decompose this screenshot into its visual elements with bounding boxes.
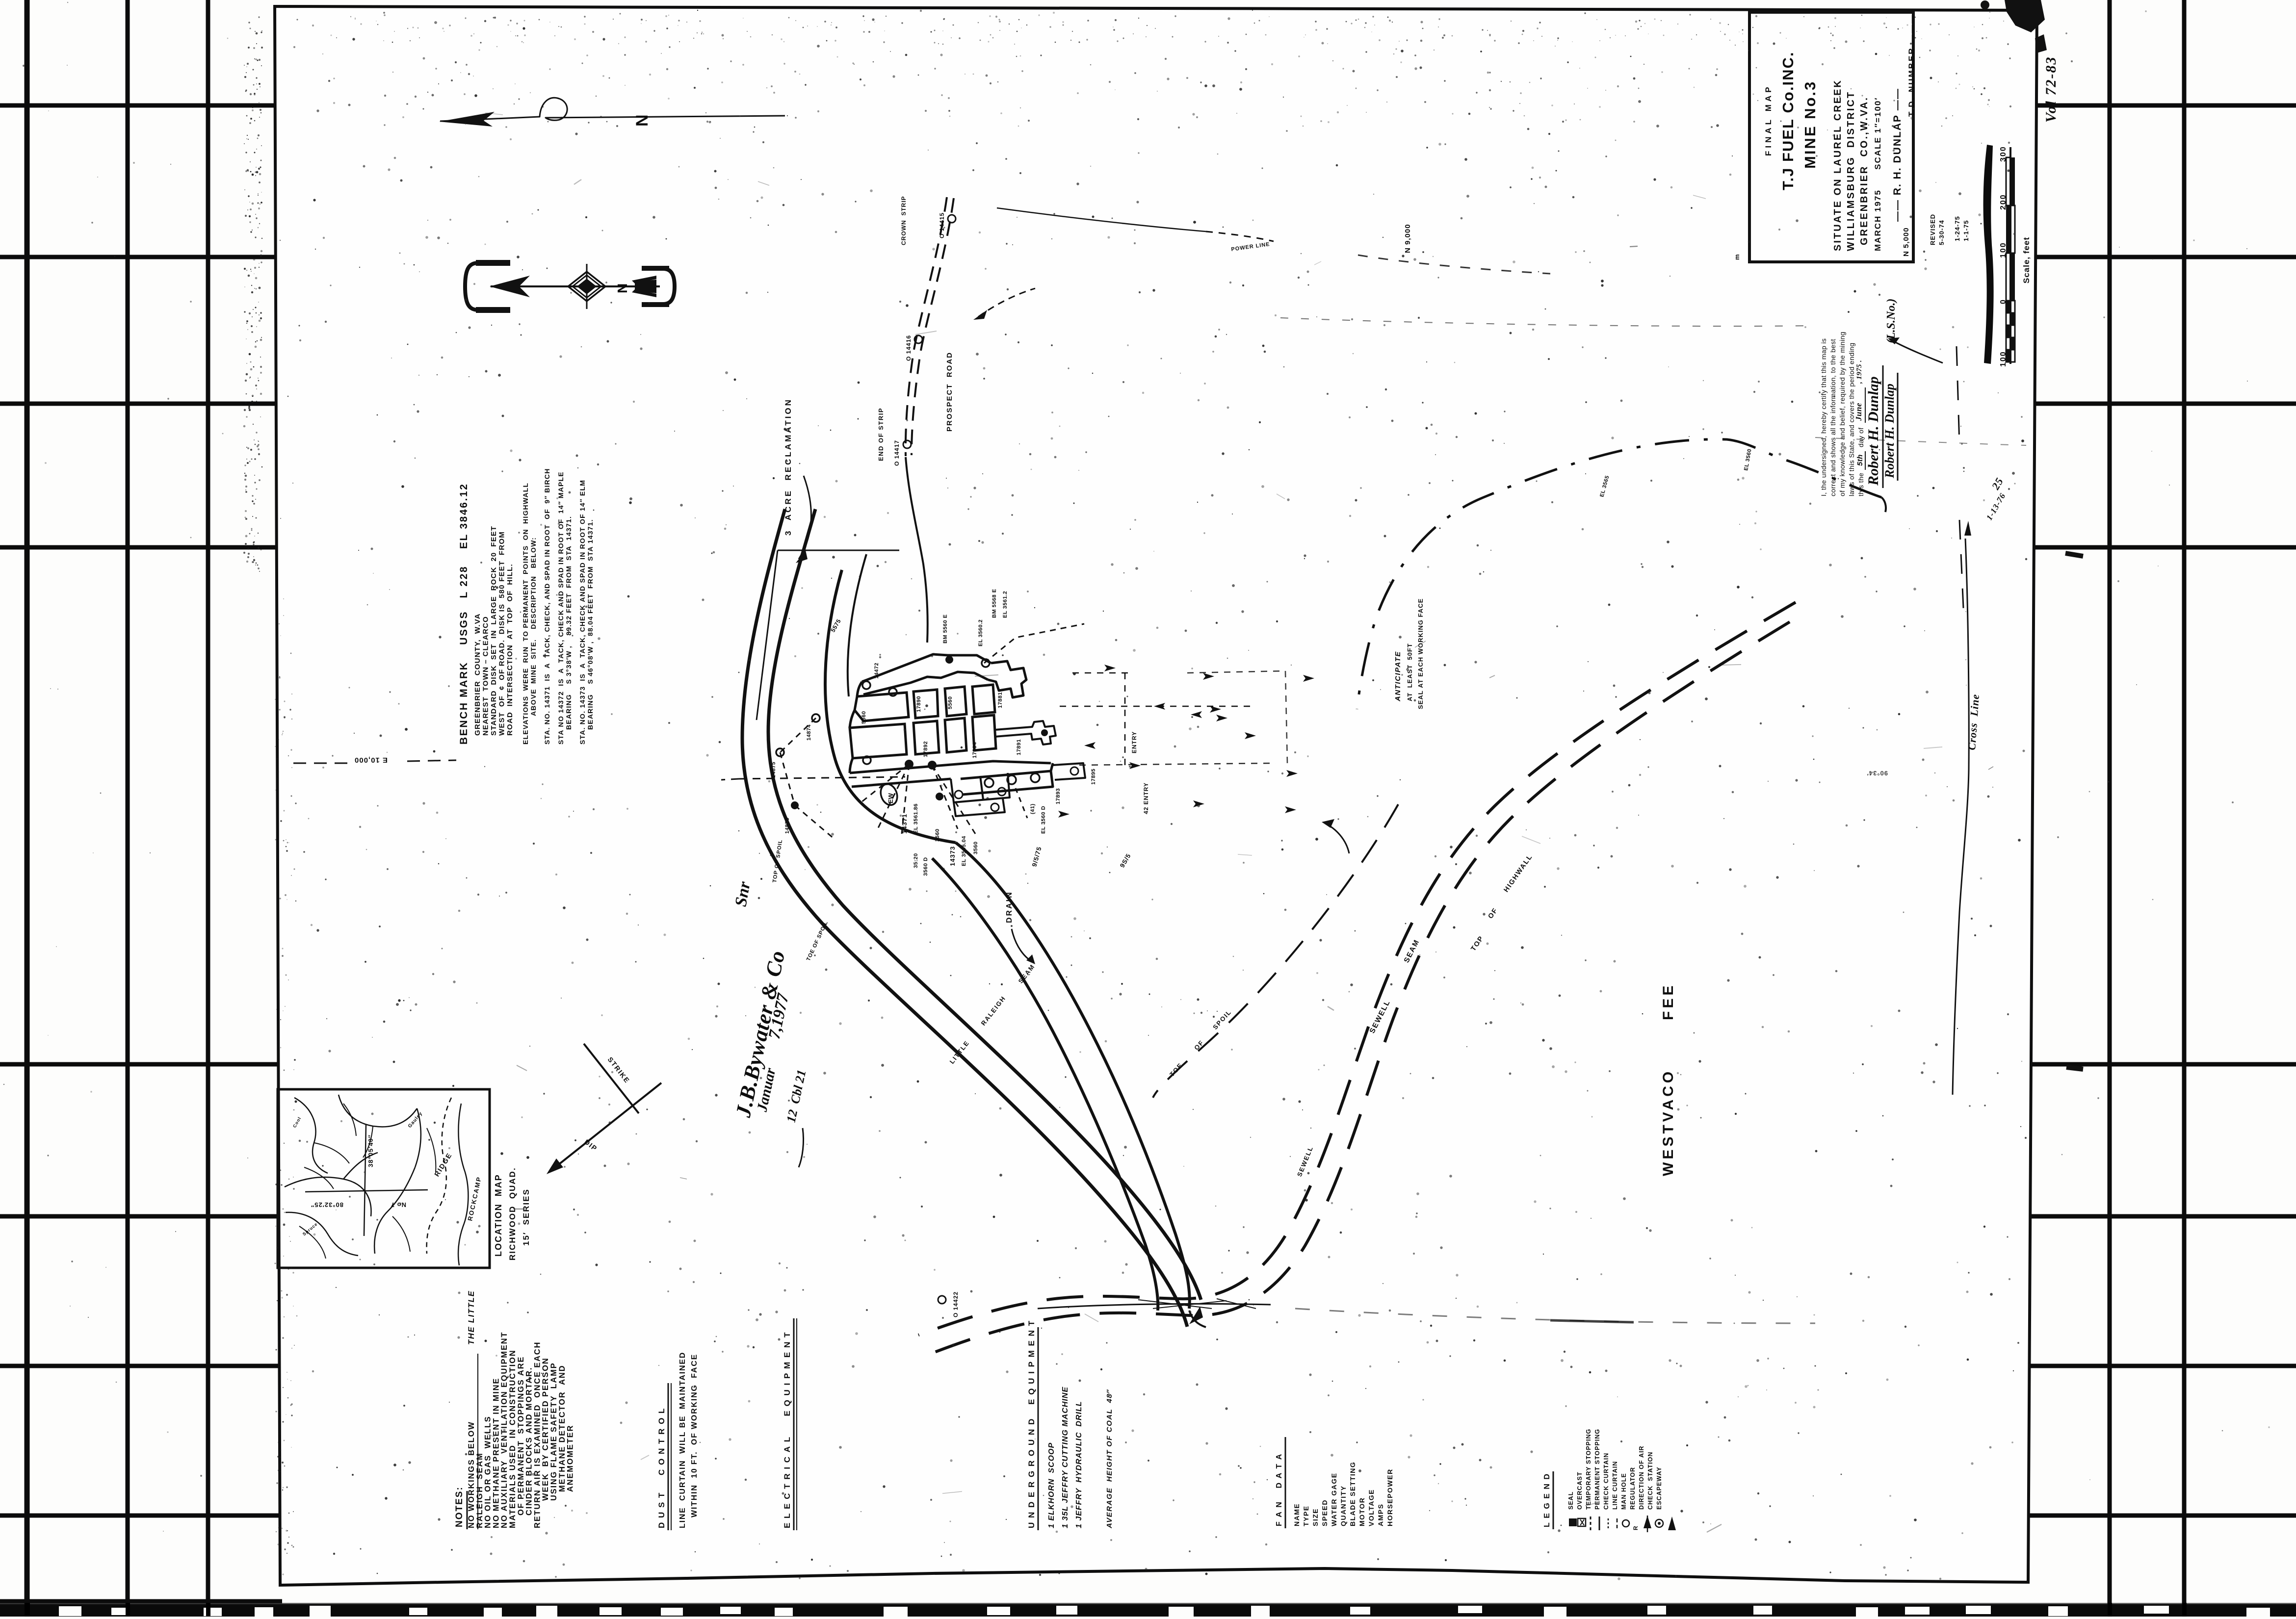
svg-text:BM 5568 E: BM 5568 E xyxy=(991,589,997,618)
svg-text:June: June xyxy=(1854,403,1863,421)
svg-text:L E G E N D: L E G E N D xyxy=(1543,1473,1551,1527)
svg-text:200: 200 xyxy=(1999,194,2008,210)
svg-text:NAME: NAME xyxy=(1293,1503,1301,1526)
svg-text:5560: 5560 xyxy=(861,711,867,724)
svg-text:EL 3561.2: EL 3561.2 xyxy=(1002,591,1008,618)
svg-text:WATER GAGE: WATER GAGE xyxy=(1330,1472,1338,1526)
svg-text:WILLIAMSBURG DISTRICT: WILLIAMSBURG DISTRICT xyxy=(1846,91,1856,251)
svg-text:EL 3560 D: EL 3560 D xyxy=(1041,806,1046,834)
svg-text:ROAD INTERSECTION AT TOP O: ROAD INTERSECTION AT TOP OF HILL. xyxy=(506,564,514,736)
svg-text:BEARING S 46°08′W , 88.04: BEARING S 46°08′W , 88.04 FEET FROM STA … xyxy=(586,519,594,730)
svg-text:CHECK STATION: CHECK STATION xyxy=(1647,1452,1654,1510)
svg-text:STA NO 14372 IS A TACK, CHE: STA NO 14372 IS A TACK, CHECK AND SPAD I… xyxy=(557,471,565,745)
svg-text:GREENBRIER COUNTY, W.VA: GREENBRIER COUNTY, W.VA xyxy=(473,613,482,736)
svg-text:RALEIGH SEAM: RALEIGH SEAM xyxy=(475,1453,484,1529)
svg-text:this the: this the xyxy=(1857,473,1865,496)
svg-text:ABOVE MINE SITE. DESCRIPT: ABOVE MINE SITE. DESCRIPTION BELOW: xyxy=(529,537,537,716)
svg-text:DRAIN: DRAIN xyxy=(1005,891,1014,923)
svg-text:14876: 14876 xyxy=(784,818,790,834)
svg-text:O 14415: O 14415 xyxy=(939,212,945,238)
svg-text:ANEMOMETER: ANEMOMETER xyxy=(566,1425,575,1492)
svg-text:80°32′25″: 80°32′25″ xyxy=(311,1201,343,1208)
svg-text:100: 100 xyxy=(1999,351,2008,367)
svg-text:17895: 17895 xyxy=(1091,769,1096,785)
svg-text:17894: 17894 xyxy=(972,742,978,758)
svg-text:BENCH MARK USGS L 228: BENCH MARK USGS L 228 EL 3846.12 xyxy=(458,483,470,745)
svg-text:day of: day of xyxy=(1857,427,1865,447)
svg-text:100: 100 xyxy=(1999,242,2008,258)
svg-text:I, the undersigned, hereby cer: I, the undersigned, hereby certify that … xyxy=(1820,338,1827,496)
svg-text:14371: 14371 xyxy=(901,814,908,834)
svg-text:AT LEAST 50FT: AT LEAST 50FT xyxy=(1406,643,1413,701)
svg-text:NO METHANE PRESENT IN MINE: NO METHANE PRESENT IN MINE xyxy=(492,1378,500,1528)
svg-text:3560: 3560 xyxy=(973,842,979,854)
svg-text:N 5,000: N 5,000 xyxy=(1902,227,1910,257)
svg-text:GREENBRIER CO.,W.VA.: GREENBRIER CO.,W.VA. xyxy=(1859,96,1870,245)
svg-text:HORSEPOWER: HORSEPOWER xyxy=(1386,1468,1394,1526)
svg-text:17892: 17892 xyxy=(923,741,929,757)
svg-text:N: N xyxy=(615,283,630,293)
svg-text:LOCATION MAP: LOCATION MAP xyxy=(494,1174,503,1257)
svg-text:U N D E R G R O U N D E Q U: U N D E R G R O U N D E Q U I P M E N T xyxy=(1027,1320,1036,1528)
svg-text:CHECK CURTAIN: CHECK CURTAIN xyxy=(1603,1453,1610,1510)
svg-text:EL 3561.86: EL 3561.86 xyxy=(913,803,919,834)
svg-text:METHANE DETECTOR AND: METHANE DETECTOR AND xyxy=(558,1365,567,1492)
svg-text:END OF STRIP: END OF STRIP xyxy=(877,408,885,461)
svg-text:FINAL MAP: FINAL MAP xyxy=(1764,84,1773,156)
svg-text:14472: 14472 xyxy=(874,663,880,679)
svg-text:USING FLAME SAFETY LAMP: USING FLAME SAFETY LAMP xyxy=(549,1362,558,1501)
svg-text:14874: 14874 xyxy=(806,724,812,741)
svg-text:DIRECTION OF AIR: DIRECTION OF AIR xyxy=(1638,1445,1645,1510)
svg-text:1-1-75: 1-1-75 xyxy=(1962,220,1970,241)
svg-text:SIZE: SIZE xyxy=(1311,1508,1319,1526)
svg-text:WESTVACO: WESTVACO xyxy=(1660,1069,1676,1176)
svg-text:14373: 14373 xyxy=(949,846,956,866)
svg-text:17893: 17893 xyxy=(1055,788,1061,804)
svg-text:5th: 5th xyxy=(1856,454,1864,466)
svg-text:ANTICIPATE: ANTICIPATE xyxy=(1394,651,1402,702)
svg-text:AMPS: AMPS xyxy=(1377,1504,1384,1526)
svg-text:TYPE: TYPE xyxy=(1302,1505,1310,1526)
svg-text:ELEVATIONS WERE RUN TO PERM: ELEVATIONS WERE RUN TO PERMANENT POINTS … xyxy=(522,483,529,745)
svg-text:EW: EW xyxy=(887,793,894,803)
svg-text:RETURN AIR IS EXAMINED ONCE E: RETURN AIR IS EXAMINED ONCE EACH xyxy=(533,1341,542,1528)
svg-text:F A N D A T A: F A N D A T A xyxy=(1275,1453,1283,1526)
svg-text:EL 3565.04: EL 3565.04 xyxy=(961,836,967,866)
svg-text:REGULATOR: REGULATOR xyxy=(1629,1467,1636,1510)
svg-text:CINDER BLOCKS AND MORTAR.: CINDER BLOCKS AND MORTAR. xyxy=(525,1367,534,1516)
svg-text:42 ENTRY: 42 ENTRY xyxy=(1143,782,1149,814)
svg-text:D U S T C O N T R O L: D U S T C O N T R O L xyxy=(657,1408,666,1528)
svg-text:QUANTITY: QUANTITY xyxy=(1339,1485,1347,1526)
svg-text:LINE CURTAIN WILL BE MAINTA: LINE CURTAIN WILL BE MAINTAINED xyxy=(678,1352,687,1528)
svg-text:BLADE SETTING: BLADE SETTING xyxy=(1349,1462,1357,1526)
svg-text:R: R xyxy=(1632,1526,1639,1530)
svg-text:3560 D: 3560 D xyxy=(923,857,929,876)
svg-text:NEAREST TOWN – CLEARCO: NEAREST TOWN – CLEARCO xyxy=(482,616,490,736)
svg-text:FEE: FEE xyxy=(1660,983,1676,1020)
svg-text:Vol 72-83: Vol 72-83 xyxy=(2043,56,2059,123)
svg-text:REVISED: REVISED xyxy=(1929,214,1936,245)
svg-text:—— R. H. DUNLAP ——: —— R. H. DUNLAP —— xyxy=(1892,88,1903,222)
svg-text:1 ELKHORN SCOOP: 1 ELKHORN SCOOP xyxy=(1047,1442,1056,1528)
svg-text:ENTRY: ENTRY xyxy=(1131,731,1138,753)
svg-text:VOLTAGE: VOLTAGE xyxy=(1367,1489,1375,1526)
svg-text:MAN HOLE: MAN HOLE xyxy=(1620,1473,1627,1510)
svg-text:STANDARD DISK SET IN LARGE: STANDARD DISK SET IN LARGE ROCK 20 FEET xyxy=(490,526,498,736)
svg-text:90°34′: 90°34′ xyxy=(1867,770,1888,777)
svg-text:Robert H. Dunlap: Robert H. Dunlap xyxy=(1882,384,1897,479)
svg-text:SEAL: SEAL xyxy=(1567,1491,1574,1510)
svg-text:THE LITTLE: THE LITTLE xyxy=(467,1290,476,1345)
svg-text:1-24-75: 1-24-75 xyxy=(1954,216,1961,241)
svg-text:300: 300 xyxy=(1999,146,2008,162)
svg-text:15′ SERIES: 15′ SERIES xyxy=(522,1188,531,1246)
svg-text:correct and shows all the info: correct and shows all the information, t… xyxy=(1829,339,1837,496)
svg-text:m: m xyxy=(1733,254,1741,260)
svg-text:WEEK BY CERTIFIED PERSON: WEEK BY CERTIFIED PERSON xyxy=(541,1357,550,1501)
svg-text:MOTOR: MOTOR xyxy=(1358,1497,1366,1526)
svg-text:NO WORKINGS BELOW: NO WORKINGS BELOW xyxy=(467,1421,476,1528)
svg-text:SITUATE ON LAUREL CREEK: SITUATE ON LAUREL CREEK xyxy=(1832,79,1843,251)
svg-text:PERMANENT STOPPING: PERMANENT STOPPING xyxy=(1594,1429,1601,1510)
svg-text:1 JEFFRY HYDRAULIC DRILL: 1 JEFFRY HYDRAULIC DRILL xyxy=(1075,1401,1083,1529)
svg-text:, 1975 .: , 1975 . xyxy=(1855,360,1863,384)
svg-text:WEST OF ¢ OF ROAD. DISK IS: WEST OF ¢ OF ROAD. DISK IS 580 FEET FROM xyxy=(498,531,506,736)
svg-text:STA. NO. 14371 IS A TACK, C: STA. NO. 14371 IS A TACK, CHECK, AND SPA… xyxy=(543,468,551,745)
svg-text:EL 3560.2: EL 3560.2 xyxy=(978,619,984,646)
svg-text:14875: 14875 xyxy=(771,762,777,778)
svg-text:of my knowledge and belief, re: of my knowledge and belief, required by … xyxy=(1838,332,1846,496)
svg-text:T.J FUEL Co.INC.: T.J FUEL Co.INC. xyxy=(1779,51,1797,190)
svg-text:35:20: 35:20 xyxy=(913,853,919,868)
svg-text:5-30-74: 5-30-74 xyxy=(1938,220,1945,245)
svg-text:No 7: No 7 xyxy=(391,1201,406,1208)
svg-text:17890: 17890 xyxy=(916,696,922,712)
svg-text:MARCH 1975 SCALE 1″=100′: MARCH 1975 SCALE 1″=100′ xyxy=(1873,97,1882,251)
svg-text:STA. NO. 14373 IS A TACK, C: STA. NO. 14373 IS A TACK, CHECK AND SPAD… xyxy=(578,480,586,745)
svg-text:Scale, feet: Scale, feet xyxy=(2022,237,2031,283)
svg-text:TEMPORARY STOPPING: TEMPORARY STOPPING xyxy=(1585,1429,1592,1510)
svg-text:SEAL AT EACH WORKING FACE: SEAL AT EACH WORKING FACE xyxy=(1417,598,1424,709)
svg-text:OF PERMANENT STOPPINGS ARE: OF PERMANENT STOPPINGS ARE xyxy=(517,1356,525,1516)
svg-text:3560: 3560 xyxy=(935,829,940,842)
svg-text:17881: 17881 xyxy=(997,692,1003,708)
svg-text:OVERCAST: OVERCAST xyxy=(1576,1472,1583,1510)
svg-text:O 14416: O 14416 xyxy=(905,335,912,361)
svg-text:SPEED: SPEED xyxy=(1321,1499,1329,1526)
svg-text:LINE CURTAIN: LINE CURTAIN xyxy=(1612,1461,1618,1510)
svg-text:CROWN STRIP: CROWN STRIP xyxy=(900,196,907,245)
svg-text:WITHIN 10 FT. OF WORKING FA: WITHIN 10 FT. OF WORKING FACE xyxy=(690,1354,699,1517)
svg-text:0: 0 xyxy=(1999,299,2008,304)
svg-text:17891: 17891 xyxy=(1016,739,1022,755)
svg-text:Robert H. Dunlap: Robert H. Dunlap xyxy=(1865,376,1881,486)
svg-text:BM 5560 E: BM 5560 E xyxy=(942,614,948,643)
svg-text:1 35L JEFFRY CUTTING MACHINE: 1 35L JEFFRY CUTTING MACHINE xyxy=(1061,1387,1070,1528)
svg-text:E 10,000: E 10,000 xyxy=(354,756,388,764)
svg-text:RICHWOOD QUAD.: RICHWOOD QUAD. xyxy=(508,1167,517,1260)
svg-text:38°05′40″: 38°05′40″ xyxy=(367,1134,374,1167)
svg-text:PROSPECT ROAD: PROSPECT ROAD xyxy=(945,352,954,432)
svg-text:(41): (41) xyxy=(1030,803,1036,814)
svg-text:N: N xyxy=(633,114,652,127)
svg-text:O 14417: O 14417 xyxy=(893,440,900,466)
svg-text:BEARING S 3°38′W , 89.32: BEARING S 3°38′W , 89.32 FEET FROM STA 1… xyxy=(565,516,573,730)
svg-text:NOTES:: NOTES: xyxy=(454,1486,465,1527)
svg-text:N 9,000: N 9,000 xyxy=(1404,224,1412,253)
svg-text:(L.S.No.): (L.S.No.) xyxy=(1885,299,1898,343)
svg-text:E L E C T R I C A L E Q U: E L E C T R I C A L E Q U I P M E N T xyxy=(783,1332,792,1528)
svg-text:5560: 5560 xyxy=(947,696,953,709)
svg-text:T.D. NUMBER ———: T.D. NUMBER ——— xyxy=(1907,14,1916,117)
svg-text:ESCAPEWAY: ESCAPEWAY xyxy=(1656,1466,1663,1510)
svg-text:MATERIALS USED IN CONSTRUCTIO: MATERIALS USED IN CONSTRUCTION xyxy=(508,1350,517,1528)
svg-text:AVERAGE HEIGHT OF COAL 48″: AVERAGE HEIGHT OF COAL 48″ xyxy=(1105,1389,1114,1529)
svg-text:O 14422: O 14422 xyxy=(952,1291,959,1317)
